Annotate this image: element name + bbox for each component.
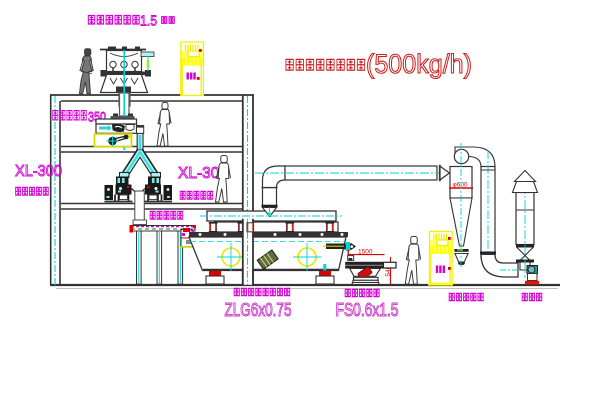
svg-text:1500: 1500 (358, 249, 373, 256)
svg-text:(500kg/h): (500kg/h) (366, 49, 472, 79)
svg-text:1.5: 1.5 (140, 13, 157, 30)
svg-text:FS0.6x1.5: FS0.6x1.5 (336, 300, 399, 320)
svg-text:XL-300: XL-300 (15, 163, 62, 180)
svg-text:ZLG6x0.75: ZLG6x0.75 (225, 300, 292, 320)
